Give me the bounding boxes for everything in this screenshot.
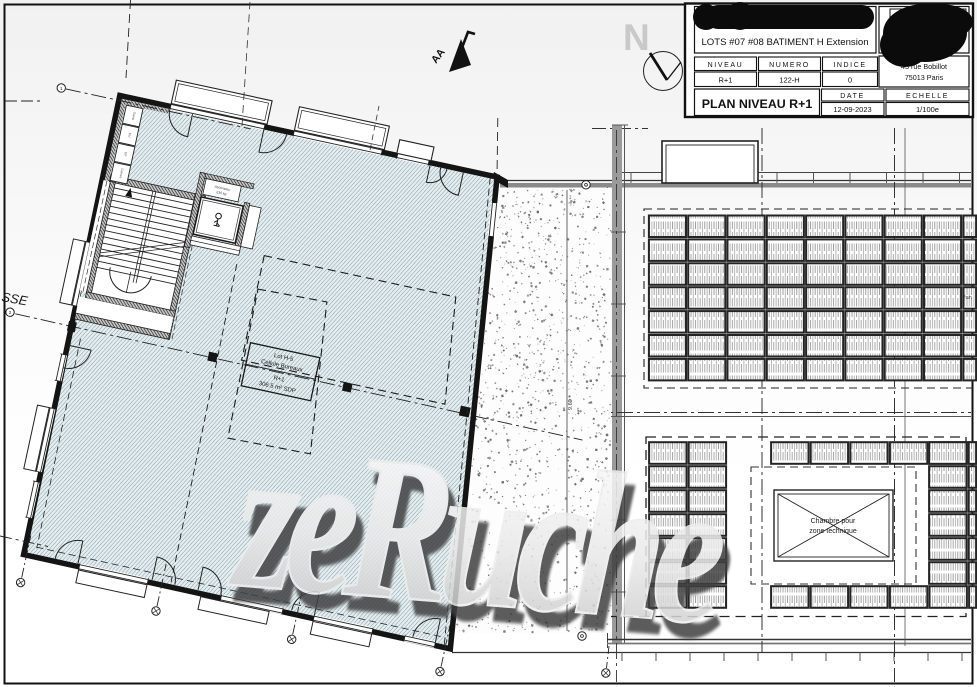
svg-text:75013 Paris: 75013 Paris [905,73,944,82]
svg-text:12-09-2023: 12-09-2023 [833,105,871,114]
svg-text:zone technique: zone technique [809,528,857,535]
svg-text:LOTS #07 #08 BATIMENT H Extens: LOTS #07 #08 BATIMENT H Extension [701,37,868,48]
svg-text:9.60: 9.60 [568,399,574,410]
svg-text:N: N [623,17,650,58]
svg-text:122-H: 122-H [779,76,799,85]
svg-text:Chambre pour: Chambre pour [811,518,856,525]
svg-text:PLAN NIVEAU R+1: PLAN NIVEAU R+1 [702,97,813,111]
svg-text:1/100e: 1/100e [916,105,939,114]
svg-text:NIVEAU: NIVEAU [708,62,744,69]
svg-text:NUMERO: NUMERO [769,62,810,69]
svg-text:Pan: Pan [962,295,972,301]
svg-text:ECHELLE: ECHELLE [906,93,949,100]
svg-text:zeRuche: zeRuche [224,403,731,668]
svg-text:DATE: DATE [840,93,865,100]
svg-text:INDICE: INDICE [833,62,866,69]
svg-text:R+1: R+1 [719,76,733,85]
svg-text:0: 0 [848,76,852,85]
